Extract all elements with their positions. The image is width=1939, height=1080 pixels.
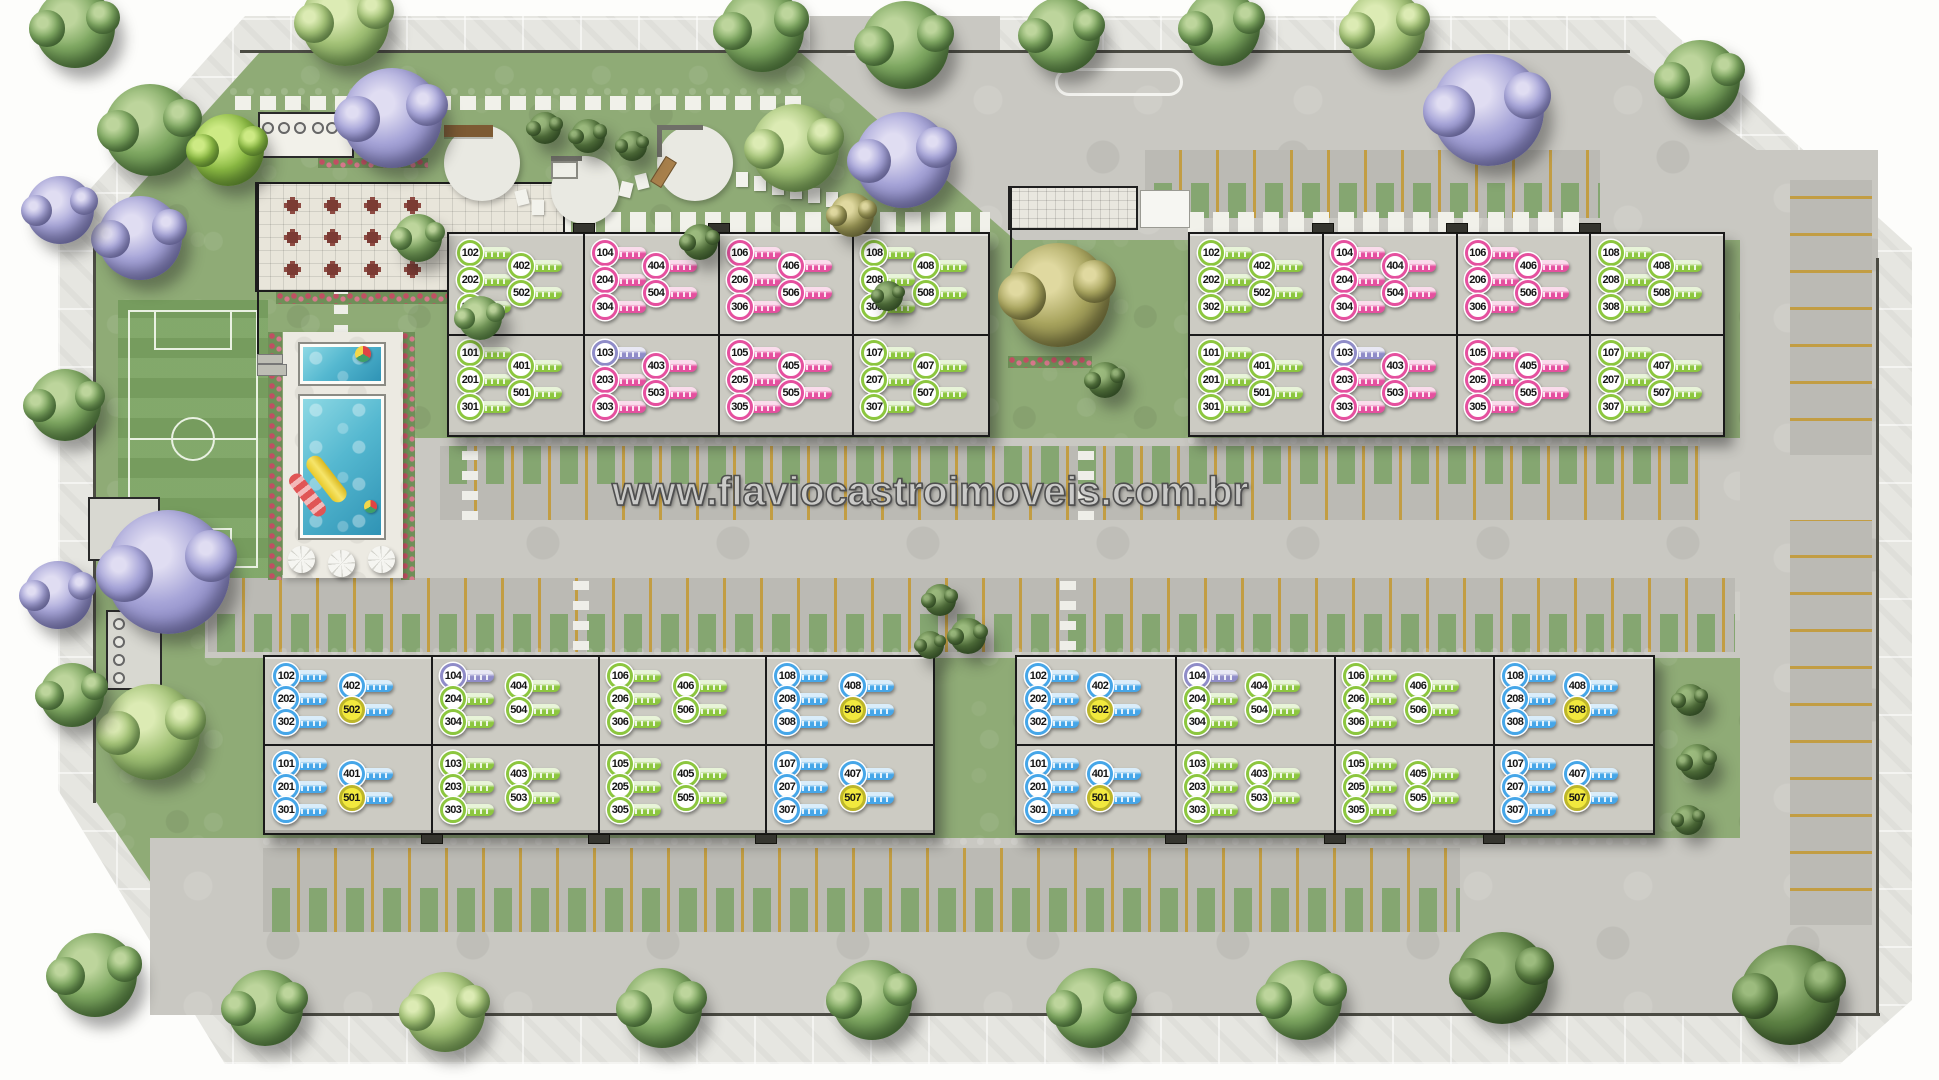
seesaw — [657, 125, 703, 130]
unit-key: 202 — [273, 686, 327, 711]
tree — [830, 193, 874, 237]
unit-number: 107 — [1502, 751, 1528, 777]
unit-key: 402 — [508, 253, 562, 278]
penalty-box — [154, 310, 232, 350]
unit-key: 108 — [861, 240, 915, 265]
stepping-stone — [532, 200, 544, 215]
unit-number: 503 — [1382, 380, 1408, 406]
unit-number: 208 — [1502, 686, 1528, 712]
unit-key: 107 — [774, 751, 828, 776]
bush — [873, 281, 903, 311]
unit-key: 503 — [506, 786, 560, 811]
unit-number: 306 — [1465, 294, 1491, 320]
unit-number: 105 — [1465, 340, 1491, 366]
unit-number: 204 — [440, 686, 466, 712]
unit-number: 204 — [1184, 686, 1210, 712]
unit-number: 202 — [273, 686, 299, 712]
unit-number: 407 — [840, 761, 866, 787]
terrace-table — [327, 264, 338, 275]
unit-key: 106 — [727, 240, 781, 265]
unit-number: 207 — [861, 367, 887, 393]
stall-planting-strips — [263, 888, 1460, 932]
unit-number: 203 — [1184, 774, 1210, 800]
unit-number: 103 — [1184, 751, 1210, 777]
unit-number: 206 — [1465, 267, 1491, 293]
building-top-right: 1022023024025021012013014015011042043044… — [1188, 232, 1725, 437]
stair-core — [573, 223, 595, 233]
pedestrian-crossing — [1060, 580, 1076, 650]
unit-key: 103 — [1331, 341, 1385, 366]
unit-number: 107 — [774, 751, 800, 777]
unit-key: 408 — [1564, 674, 1618, 699]
unit-key: 505 — [1405, 786, 1459, 811]
key-shaft-icon — [1352, 274, 1385, 286]
unit-number: 103 — [592, 340, 618, 366]
unit-key: 303 — [1331, 395, 1385, 420]
key-shaft-icon — [1669, 360, 1702, 372]
tree — [855, 112, 951, 208]
bbq-grill — [113, 636, 125, 648]
unit-key: 404 — [1246, 674, 1300, 699]
unit-number: 105 — [1343, 751, 1369, 777]
key-shaft-icon — [1536, 260, 1569, 272]
stepping-stone — [808, 188, 820, 203]
unit-key: 201 — [273, 774, 327, 799]
floor-divider — [449, 334, 988, 336]
unit-key: 506 — [1405, 698, 1459, 723]
unit-key: 401 — [508, 354, 562, 379]
stair-core — [1579, 223, 1601, 233]
unit-key: 401 — [1249, 354, 1303, 379]
kids-pool — [300, 344, 384, 384]
unit-key: 403 — [1246, 762, 1300, 787]
unit-number: 201 — [1198, 367, 1224, 393]
tree — [1456, 932, 1548, 1024]
unit-number: 403 — [1246, 761, 1272, 787]
flower-bed — [401, 332, 415, 580]
unit-number: 404 — [506, 673, 532, 699]
tree — [35, 0, 115, 68]
unit-key: 405 — [1405, 762, 1459, 787]
unit-key: 101 — [1198, 341, 1252, 366]
unit-key: 507 — [1564, 786, 1618, 811]
unit-key: 101 — [273, 751, 327, 776]
unit-number: 202 — [457, 267, 483, 293]
unit-key: 102 — [273, 663, 327, 688]
bush — [1679, 744, 1715, 780]
unit-number: 503 — [506, 785, 532, 811]
unit-number: 202 — [1025, 686, 1051, 712]
terrace-table — [287, 232, 298, 243]
unit-key: 205 — [727, 368, 781, 393]
tree — [1052, 968, 1132, 1048]
tree — [1740, 945, 1840, 1045]
key-shaft-icon — [1536, 287, 1569, 299]
key-shaft-icon — [1352, 347, 1385, 359]
unit-key: 505 — [778, 381, 832, 406]
unit-key: 201 — [1198, 368, 1252, 393]
unit-number: 302 — [273, 709, 299, 735]
unit-number: 203 — [1331, 367, 1357, 393]
stepping-stone — [618, 181, 633, 198]
bench — [444, 133, 493, 137]
bbq-grill — [278, 122, 290, 134]
tree — [861, 1, 949, 89]
unit-key: 103 — [1184, 751, 1238, 776]
unit-key: 304 — [440, 710, 494, 735]
unit-number: 207 — [774, 774, 800, 800]
unit-number: 303 — [592, 394, 618, 420]
unit-key: 301 — [273, 798, 327, 823]
unit-number: 305 — [1343, 797, 1369, 823]
unit-key: 406 — [673, 674, 727, 699]
unit-key: 108 — [1502, 663, 1556, 688]
key-shaft-icon — [529, 360, 562, 372]
unit-key: 504 — [643, 280, 697, 305]
bush — [950, 618, 986, 654]
unit-key: 307 — [861, 395, 915, 420]
key-shaft-icon — [529, 387, 562, 399]
unit-key: 204 — [592, 267, 646, 292]
tree — [40, 663, 104, 727]
unit-key: 504 — [1382, 280, 1436, 305]
unit-number: 406 — [673, 673, 699, 699]
unit-number: 407 — [1564, 761, 1590, 787]
unit-key: 107 — [1598, 341, 1652, 366]
unit-number: 101 — [1025, 751, 1051, 777]
unit-key: 506 — [673, 698, 727, 723]
unit-number: 102 — [1198, 240, 1224, 266]
unit-number: 104 — [440, 663, 466, 689]
pool-umbrella — [288, 546, 315, 573]
unit-key: 501 — [1249, 381, 1303, 406]
unit-key: 507 — [913, 381, 967, 406]
unit-key: 208 — [774, 686, 828, 711]
unit-key: 504 — [1246, 698, 1300, 723]
unit-key: 406 — [1515, 253, 1569, 278]
tree — [1262, 960, 1342, 1040]
unit-number: 403 — [506, 761, 532, 787]
unit-key: 308 — [774, 710, 828, 735]
unit-number: 103 — [1331, 340, 1357, 366]
unit-key: 106 — [1465, 240, 1519, 265]
unit-key: 203 — [1184, 774, 1238, 799]
entrance-island-marking — [1055, 68, 1183, 96]
unit-key: 201 — [1025, 774, 1079, 799]
pedestrian-crossing — [334, 288, 348, 334]
unit-number: 406 — [778, 253, 804, 279]
unit-number: 105 — [607, 751, 633, 777]
terrace-table — [407, 200, 418, 211]
unit-number: 507 — [1564, 785, 1590, 811]
unit-key: 307 — [1502, 798, 1556, 823]
kitchen-counter — [257, 364, 287, 376]
unit-number: 107 — [861, 340, 887, 366]
bush — [924, 584, 956, 616]
unit-number: 503 — [1246, 785, 1272, 811]
unit-key: 505 — [673, 786, 727, 811]
unit-number: 205 — [607, 774, 633, 800]
site-plan: 1022023024025021012013014015011042043044… — [0, 0, 1939, 1080]
unit-key: 501 — [508, 381, 562, 406]
unit-number: 504 — [1246, 697, 1272, 723]
unit-number: 408 — [913, 253, 939, 279]
unit-number: 505 — [778, 380, 804, 406]
unit-key: 504 — [506, 698, 560, 723]
unit-number: 403 — [643, 353, 669, 379]
unit-key: 502 — [1249, 280, 1303, 305]
key-shaft-icon — [1536, 387, 1569, 399]
unit-key: 103 — [440, 751, 494, 776]
unit-key: 508 — [840, 698, 894, 723]
unit-number: 108 — [1598, 240, 1624, 266]
tree — [622, 968, 702, 1048]
unit-number: 501 — [508, 380, 534, 406]
unit-key: 208 — [1598, 267, 1652, 292]
unit-number: 507 — [840, 785, 866, 811]
pergola-benches — [444, 125, 520, 201]
unit-number: 401 — [1249, 353, 1275, 379]
unit-number: 502 — [339, 697, 365, 723]
kitchen-wall — [257, 184, 259, 290]
unit-number: 301 — [457, 394, 483, 420]
unit-key: 408 — [913, 253, 967, 278]
unit-key: 302 — [1198, 294, 1252, 319]
unit-number: 106 — [727, 240, 753, 266]
key-shaft-icon — [882, 374, 915, 386]
key-shaft-icon — [1669, 287, 1702, 299]
key-shaft-icon — [882, 347, 915, 359]
unit-key: 202 — [1025, 686, 1079, 711]
pedestrian-crossing — [573, 580, 589, 650]
unit-key: 308 — [1598, 294, 1652, 319]
unit-number: 501 — [1249, 380, 1275, 406]
unit-key: 107 — [861, 341, 915, 366]
tree — [1432, 54, 1544, 166]
gatehouse — [1008, 186, 1138, 230]
unit-key: 307 — [774, 798, 828, 823]
unit-number: 408 — [1564, 673, 1590, 699]
tree — [751, 104, 839, 192]
unit-key: 305 — [1343, 798, 1397, 823]
unit-number: 101 — [1198, 340, 1224, 366]
unit-key: 207 — [774, 774, 828, 799]
unit-key: 102 — [1025, 663, 1079, 688]
tree — [24, 561, 92, 629]
unit-number: 307 — [1598, 394, 1624, 420]
unit-number: 407 — [1648, 353, 1674, 379]
floor-divider — [1017, 744, 1653, 746]
bbq-grill — [113, 618, 125, 630]
unit-number: 506 — [778, 280, 804, 306]
terrace-table — [287, 264, 298, 275]
unit-key: 408 — [1648, 253, 1702, 278]
unit-number: 205 — [727, 367, 753, 393]
unit-number: 101 — [457, 340, 483, 366]
pedestrian-crossing — [462, 448, 478, 520]
unit-key: 104 — [440, 663, 494, 688]
bush — [571, 119, 605, 153]
unit-number: 104 — [1184, 663, 1210, 689]
key-shaft-icon — [529, 287, 562, 299]
slide — [650, 156, 677, 188]
unit-number: 405 — [1405, 761, 1431, 787]
unit-key: 208 — [1502, 686, 1556, 711]
unit-number: 108 — [1502, 663, 1528, 689]
bush — [1673, 805, 1703, 835]
parking-stall-row — [1145, 150, 1600, 218]
unit-number: 405 — [778, 353, 804, 379]
tree — [53, 933, 137, 1017]
unit-number: 406 — [1405, 673, 1431, 699]
center-circle — [171, 417, 215, 461]
unit-key: 101 — [457, 341, 511, 366]
tree — [405, 972, 485, 1052]
pool-umbrella — [368, 546, 395, 573]
unit-number: 407 — [913, 353, 939, 379]
unit-key: 301 — [1025, 798, 1079, 823]
stair-core — [1446, 223, 1468, 233]
unit-number: 104 — [592, 240, 618, 266]
key-shaft-icon — [882, 247, 915, 259]
unit-key: 304 — [592, 294, 646, 319]
bush — [617, 131, 647, 161]
bush — [529, 112, 561, 144]
unit-number: 405 — [1515, 353, 1541, 379]
unit-key: 503 — [1246, 786, 1300, 811]
unit-number: 408 — [840, 673, 866, 699]
unit-key: 108 — [1598, 240, 1652, 265]
pool-umbrella — [328, 550, 355, 577]
unit-key: 104 — [592, 240, 646, 265]
unit-number: 204 — [592, 267, 618, 293]
stepping-stone — [634, 173, 649, 190]
unit-key: 105 — [1343, 751, 1397, 776]
unit-number: 203 — [592, 367, 618, 393]
unit-key: 206 — [1465, 267, 1519, 292]
unit-number: 406 — [1515, 253, 1541, 279]
tree — [301, 0, 389, 66]
bush — [916, 631, 944, 659]
unit-number: 102 — [1025, 663, 1051, 689]
key-shaft-icon — [1352, 401, 1385, 413]
stepping-stone — [736, 172, 748, 187]
watermark: www.flaviocastroimoveis.com.br — [612, 468, 1248, 515]
unit-key: 508 — [1648, 280, 1702, 305]
bbq-grill — [113, 672, 125, 684]
unit-key: 206 — [1343, 686, 1397, 711]
unit-key: 102 — [457, 240, 511, 265]
unit-number: 206 — [727, 267, 753, 293]
unit-number: 307 — [774, 797, 800, 823]
terrace-table — [327, 232, 338, 243]
unit-key: 206 — [727, 267, 781, 292]
unit-key: 502 — [508, 280, 562, 305]
unit-number: 205 — [1343, 774, 1369, 800]
unit-key: 108 — [774, 663, 828, 688]
unit-key: 104 — [1331, 240, 1385, 265]
unit-key: 505 — [1515, 381, 1569, 406]
tree — [458, 296, 502, 340]
stair-core — [588, 834, 610, 844]
unit-number: 108 — [774, 663, 800, 689]
unit-number: 502 — [508, 280, 534, 306]
unit-key: 501 — [339, 786, 393, 811]
unit-key: 404 — [506, 674, 560, 699]
unit-key: 305 — [1465, 395, 1519, 420]
unit-number: 102 — [457, 240, 483, 266]
bbq-grill — [113, 654, 125, 666]
terrace-table — [367, 200, 378, 211]
unit-number: 304 — [592, 294, 618, 320]
unit-key: 508 — [1564, 698, 1618, 723]
unit-number: 402 — [508, 253, 534, 279]
unit-key: 503 — [1382, 381, 1436, 406]
unit-number: 507 — [913, 380, 939, 406]
unit-key: 204 — [1184, 686, 1238, 711]
unit-key: 405 — [778, 354, 832, 379]
unit-key: 305 — [727, 395, 781, 420]
unit-number: 305 — [607, 797, 633, 823]
key-shaft-icon — [882, 401, 915, 413]
tree — [104, 684, 200, 780]
unit-key: 202 — [457, 267, 511, 292]
unit-key: 105 — [607, 751, 661, 776]
unit-key: 503 — [643, 381, 697, 406]
parking-stall-row — [263, 848, 1460, 932]
unit-key: 507 — [1648, 381, 1702, 406]
unit-number: 402 — [339, 673, 365, 699]
unit-key: 303 — [1184, 798, 1238, 823]
unit-key: 203 — [1331, 368, 1385, 393]
unit-number: 405 — [673, 761, 699, 787]
unit-number: 501 — [1087, 785, 1113, 811]
unit-number: 206 — [607, 686, 633, 712]
unit-number: 404 — [643, 253, 669, 279]
unit-key: 403 — [643, 354, 697, 379]
building-bottom-right: 1022023024025021012013014015011042043044… — [1015, 655, 1655, 835]
unit-key: 502 — [339, 698, 393, 723]
unit-key: 403 — [1382, 354, 1436, 379]
tree — [832, 960, 912, 1040]
unit-key: 101 — [1025, 751, 1079, 776]
stair-core — [1312, 223, 1334, 233]
unit-number: 402 — [1087, 673, 1113, 699]
unit-number: 401 — [339, 761, 365, 787]
parking-stall-row — [1790, 520, 1872, 925]
unit-key: 207 — [1598, 368, 1652, 393]
unit-number: 504 — [1382, 280, 1408, 306]
plan-layer: 1022023024025021012013014015011042043044… — [0, 0, 1939, 1080]
building-bottom-left: 1022023024025021012013014015011042043044… — [263, 655, 935, 835]
unit-key: 406 — [1405, 674, 1459, 699]
unit-number: 302 — [1025, 709, 1051, 735]
unit-key: 506 — [778, 280, 832, 305]
unit-number: 205 — [1465, 367, 1491, 393]
unit-number: 103 — [440, 751, 466, 777]
key-shaft-icon — [1352, 247, 1385, 259]
tree — [26, 176, 94, 244]
unit-number: 108 — [861, 240, 887, 266]
unit-key: 206 — [607, 686, 661, 711]
tree — [98, 196, 182, 280]
unit-number: 408 — [1648, 253, 1674, 279]
unit-number: 307 — [861, 394, 887, 420]
unit-number: 401 — [508, 353, 534, 379]
unit-number: 201 — [1025, 774, 1051, 800]
unit-number: 306 — [607, 709, 633, 735]
unit-key: 408 — [840, 674, 894, 699]
